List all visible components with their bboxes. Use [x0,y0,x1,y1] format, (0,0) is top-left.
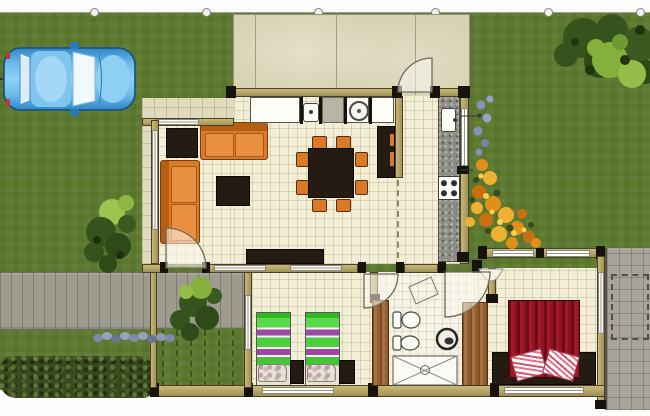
sideboard-accent [390,152,394,166]
sideboard-accent [390,134,394,146]
dining-table [308,148,354,198]
appliance-divider [344,96,347,124]
pergola-batten [162,330,164,387]
entrance-walkway [0,272,244,330]
pergola-batten [176,330,178,387]
twin-bed-pillow [307,364,336,382]
boundary-marker [203,9,210,16]
pergola-batten [218,330,220,387]
sofa-cushion [235,133,264,157]
fridge [371,97,394,123]
door-jamb [472,260,482,273]
door-jamb [160,262,168,273]
window [546,250,590,257]
sofa-cushion [171,166,197,203]
dining-chair [355,180,368,195]
sofa-cushion [205,133,234,157]
glazed-door-east [598,272,604,334]
column [458,86,470,98]
column [595,400,606,409]
appliance-gray [322,97,344,123]
appliance-divider [300,96,303,124]
window [461,108,468,166]
door-jamb [202,262,210,273]
appliance-divider [369,96,372,124]
site-plan [0,0,650,416]
window [152,130,158,230]
window [504,387,584,394]
sink-faucet [453,118,457,122]
appliance-divider [319,96,322,124]
nightstand [290,360,304,384]
door-jamb [396,262,404,273]
window [492,250,534,257]
dining-chair [336,199,351,212]
ceiling-beam-dashed [397,180,399,258]
column [392,86,402,98]
window [214,265,266,271]
terrace-joint [336,15,337,95]
tv-sideboard [246,249,324,264]
sofa-west [160,160,200,244]
window [262,387,334,394]
column [457,252,469,262]
dining-sideboard [377,126,395,178]
north-apron [142,98,234,120]
north-counter [250,97,300,123]
window [245,295,251,350]
car-graphic [0,40,140,118]
boundary-marker [637,9,644,16]
column [490,383,499,397]
door-jamb [438,262,446,273]
window [155,119,199,125]
timber-door [372,300,389,386]
column [430,86,440,98]
boundary-marker [91,9,98,16]
door-jamb [358,262,366,273]
column [478,246,487,259]
bath-partition-west [370,272,378,296]
hedge [0,356,153,398]
north-wall [230,88,398,97]
window [290,265,342,271]
dining-chair [355,152,368,167]
parked-car [0,40,140,118]
kitchen-partition [395,96,403,178]
terrace-joint [415,15,416,95]
terrace-joint [255,15,256,95]
timber-door [462,302,488,386]
dining-chair [312,199,327,212]
nightstand [339,360,355,384]
column [457,166,469,174]
courtyard-garden [157,328,244,388]
sofa-cushion [171,204,197,241]
pergola-batten [232,330,234,387]
pergola-batten [190,330,192,387]
sofa-north [200,122,268,160]
twin-bed-pillow [258,364,287,382]
boundary-marker [545,9,552,16]
cooktop-4-burner [438,176,460,200]
north-sink-faucet [309,110,313,114]
corner-table [166,128,198,158]
south-wall-living [404,264,438,273]
pergola-batten [204,330,206,387]
courtyard-west-wall [150,272,157,388]
patio-layout-dashed-rect [611,274,649,340]
column [226,86,236,98]
sofa-back [161,161,169,243]
column [536,248,544,258]
coffee-table [216,176,250,206]
washer-drum-center [357,109,361,113]
